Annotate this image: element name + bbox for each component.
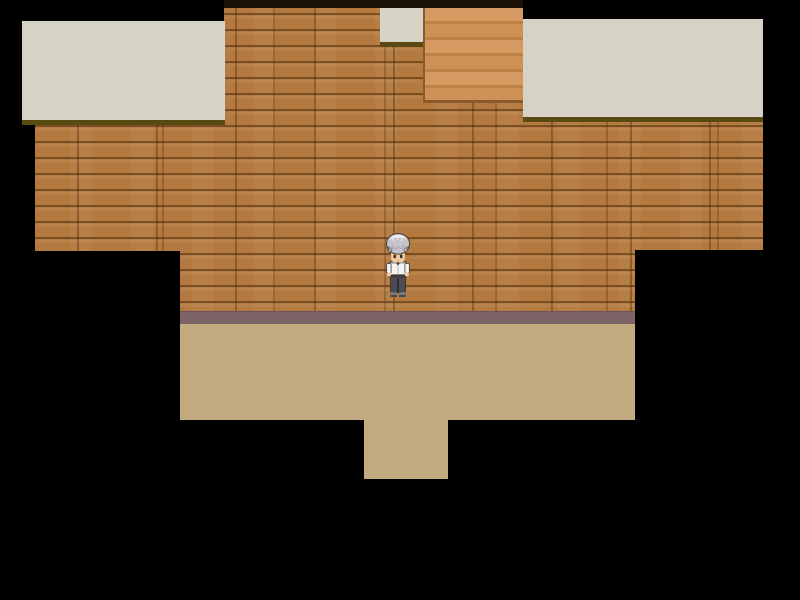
ceiling-tile-right bbox=[523, 19, 763, 117]
floor-doorway-protrusion[interactable] bbox=[364, 420, 448, 479]
player-hair bbox=[386, 233, 410, 255]
player-shirt bbox=[389, 262, 407, 278]
wall-top-shade bbox=[224, 0, 523, 8]
ceiling-shadow-left bbox=[22, 120, 225, 125]
floor-walkable[interactable] bbox=[180, 324, 635, 420]
player-pants bbox=[390, 276, 406, 293]
ceiling-shadow-right bbox=[523, 117, 763, 122]
ceiling-tile-left bbox=[22, 21, 225, 120]
game-viewport[interactable] bbox=[0, 0, 800, 600]
ceiling-shadow-notch bbox=[380, 42, 423, 47]
player-sprite bbox=[384, 231, 412, 298]
baseboard-strip bbox=[180, 311, 635, 324]
stair-column bbox=[423, 8, 523, 103]
ceiling-notch-top-center bbox=[380, 8, 423, 42]
player-character bbox=[384, 231, 412, 298]
